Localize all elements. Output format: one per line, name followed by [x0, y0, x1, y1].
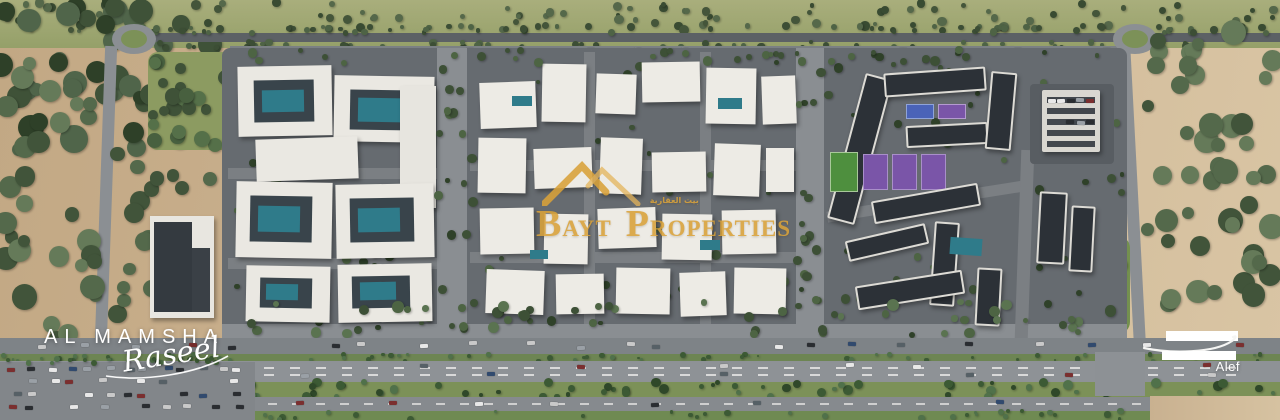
- tree: [503, 26, 509, 32]
- tree: [1117, 408, 1124, 415]
- tree: [782, 22, 790, 30]
- lane-marking: [576, 374, 586, 376]
- tree: [633, 17, 639, 23]
- car: [527, 341, 535, 345]
- tree: [23, 1, 30, 8]
- tree: [990, 28, 998, 36]
- lane-marking: [676, 403, 685, 405]
- cluster-west: [258, 206, 300, 233]
- tree: [1092, 10, 1100, 18]
- lane-marking: [758, 374, 768, 376]
- tree: [960, 316, 969, 325]
- lane-marking: [1018, 367, 1028, 369]
- cluster-central: [616, 268, 671, 315]
- tree: [965, 413, 969, 417]
- tree: [611, 387, 616, 392]
- lane-marking: [342, 367, 352, 369]
- car: [295, 401, 303, 405]
- lane-marking: [892, 403, 901, 405]
- tree: [1263, 30, 1269, 36]
- cluster-east: [892, 154, 917, 190]
- tree: [1192, 38, 1204, 50]
- parking-structure: [1047, 130, 1095, 136]
- tree: [179, 88, 194, 103]
- lane-marking: [888, 367, 898, 369]
- tree: [818, 325, 827, 334]
- tree: [555, 24, 560, 29]
- tree: [1225, 217, 1241, 233]
- tree: [182, 101, 196, 115]
- lane-marking: [420, 374, 430, 376]
- tree: [216, 25, 224, 33]
- tree: [848, 53, 855, 60]
- cluster-central: [642, 61, 701, 102]
- lane-marking: [654, 367, 664, 369]
- lane-marking: [844, 403, 853, 405]
- tree: [191, 0, 201, 10]
- desert-left: [121, 30, 147, 48]
- car: [180, 392, 188, 396]
- tree: [1155, 209, 1178, 232]
- tree: [1242, 283, 1266, 307]
- cluster-central: [706, 68, 757, 125]
- tree: [268, 415, 273, 420]
- lane-marking: [368, 367, 378, 369]
- tree: [834, 63, 844, 73]
- lane-marking: [472, 367, 482, 369]
- tree: [1023, 24, 1030, 31]
- tree: [6, 358, 10, 362]
- lane-marking: [484, 403, 493, 405]
- lane-marking: [498, 374, 508, 376]
- tree: [951, 315, 957, 321]
- tree: [436, 130, 443, 137]
- lane-marking: [1070, 367, 1080, 369]
- tree: [448, 354, 453, 359]
- lane-marking: [368, 374, 378, 376]
- tree: [338, 27, 342, 31]
- tree: [978, 381, 984, 387]
- tree: [1199, 113, 1223, 137]
- tree: [203, 172, 217, 186]
- cluster-west: [360, 282, 396, 301]
- tree: [798, 57, 806, 65]
- tree: [1255, 385, 1263, 393]
- tree: [129, 0, 153, 23]
- car: [65, 380, 73, 384]
- tree: [774, 60, 779, 65]
- tree: [1269, 6, 1277, 14]
- tree: [459, 322, 468, 331]
- tree: [167, 169, 180, 182]
- tree: [496, 390, 500, 394]
- watermark-word-2: PROPERTIES: [626, 207, 791, 241]
- tree: [15, 166, 36, 187]
- lane-marking: [1036, 403, 1045, 405]
- car: [7, 368, 15, 372]
- tree: [1063, 380, 1073, 390]
- car: [232, 368, 240, 372]
- tree: [201, 104, 212, 115]
- lane-marking: [602, 367, 612, 369]
- tree: [388, 353, 393, 358]
- car: [1065, 373, 1073, 377]
- car: [577, 365, 585, 369]
- tree: [566, 392, 570, 396]
- tree: [937, 17, 946, 26]
- watermark-word-1: BAYT: [536, 207, 612, 241]
- car: [487, 372, 495, 376]
- tree: [878, 26, 884, 32]
- tree: [477, 52, 486, 61]
- lane-marking: [940, 367, 950, 369]
- car: [332, 344, 340, 348]
- tree: [326, 410, 331, 415]
- tree: [108, 305, 126, 323]
- tree: [991, 14, 999, 22]
- cluster-central: [718, 98, 742, 109]
- tree: [1074, 390, 1078, 394]
- car: [357, 342, 365, 346]
- cluster-west: [266, 284, 298, 301]
- tree: [1141, 223, 1154, 236]
- lane-marking: [268, 403, 277, 405]
- watermark-arabic-text: بيت العقارية: [650, 197, 699, 205]
- lane-marking: [680, 367, 690, 369]
- car: [1086, 98, 1094, 102]
- tree: [249, 30, 255, 36]
- tree: [157, 40, 163, 46]
- lane-marking: [1018, 374, 1028, 376]
- car: [106, 393, 114, 397]
- desert-right: [1122, 30, 1148, 48]
- lane-marking: [394, 367, 404, 369]
- lane-marking: [412, 403, 421, 405]
- tree: [204, 19, 212, 27]
- tree: [186, 43, 192, 49]
- tree: [1121, 5, 1127, 11]
- tree: [1181, 166, 1199, 184]
- tree: [214, 45, 219, 50]
- lane-marking: [1084, 403, 1093, 405]
- lane-marking: [796, 403, 805, 405]
- tree: [1011, 385, 1016, 390]
- cluster-central: [700, 240, 720, 250]
- tree: [1073, 27, 1080, 34]
- tree: [724, 410, 731, 417]
- tree: [1207, 285, 1222, 300]
- tree: [831, 24, 837, 30]
- tree: [912, 28, 917, 33]
- tree: [1190, 29, 1197, 36]
- lane-marking: [758, 367, 768, 369]
- tree: [870, 26, 875, 31]
- car: [199, 394, 207, 398]
- tree: [488, 322, 499, 333]
- tree: [701, 299, 708, 306]
- tree: [817, 388, 826, 397]
- lane-marking: [264, 374, 274, 376]
- cluster-central: [512, 96, 532, 106]
- tree: [589, 319, 597, 327]
- lane-marking: [836, 367, 846, 369]
- car: [897, 343, 905, 347]
- tree: [445, 85, 454, 94]
- tree: [56, 2, 80, 26]
- car: [652, 345, 660, 349]
- tree: [49, 53, 68, 72]
- tree: [1210, 26, 1218, 34]
- tree: [944, 380, 953, 389]
- tree: [162, 44, 169, 51]
- tree: [968, 102, 974, 108]
- tree: [975, 26, 981, 32]
- tree: [670, 410, 673, 413]
- tree: [354, 326, 362, 334]
- tree: [732, 383, 738, 389]
- tree: [65, 207, 79, 221]
- lane-marking: [732, 374, 742, 376]
- lane-marking: [992, 367, 1002, 369]
- tree: [1166, 16, 1170, 20]
- car: [1057, 99, 1065, 103]
- lane-marking: [524, 374, 534, 376]
- lane-marking: [680, 374, 690, 376]
- cluster-west: [192, 248, 210, 312]
- tree: [461, 180, 467, 186]
- tree: [1042, 50, 1047, 55]
- tree: [148, 119, 159, 130]
- tree: [343, 30, 348, 35]
- car: [1085, 120, 1093, 124]
- tree: [445, 178, 450, 183]
- cluster-west: [255, 136, 358, 182]
- tree: [498, 301, 509, 312]
- agency-watermark-text: BAYT بيت العقارية PROPERTIES: [536, 207, 796, 241]
- car: [1066, 120, 1074, 124]
- tree: [750, 330, 758, 338]
- lane-marking: [524, 367, 534, 369]
- lane-marking: [290, 367, 300, 369]
- lane-marking: [888, 374, 898, 376]
- cluster-central: [541, 64, 586, 123]
- tree: [957, 299, 963, 305]
- lane-marking: [820, 403, 829, 405]
- cluster-central: [480, 208, 535, 255]
- car: [233, 392, 241, 396]
- lane-marking: [446, 374, 456, 376]
- cluster-central: [595, 73, 636, 114]
- tree: [778, 307, 787, 316]
- car: [720, 371, 728, 375]
- tree: [1186, 280, 1209, 303]
- car: [27, 367, 35, 371]
- tree: [1213, 159, 1238, 184]
- lane-marking: [628, 374, 638, 376]
- agency-watermark: BAYT بيت العقارية PROPERTIES: [536, 160, 796, 241]
- lane-marking: [992, 374, 1002, 376]
- tree: [1001, 300, 1012, 311]
- tree: [788, 411, 792, 415]
- lane-marking: [316, 403, 325, 405]
- tree: [599, 353, 605, 359]
- car: [183, 404, 191, 408]
- tree: [1068, 316, 1075, 323]
- tree: [359, 305, 369, 315]
- car: [577, 346, 585, 350]
- tree: [706, 355, 711, 360]
- developer-logo: Alef: [1136, 326, 1248, 380]
- tree: [68, 358, 72, 362]
- lane-marking: [580, 403, 589, 405]
- tree: [882, 310, 890, 318]
- tree: [375, 325, 381, 331]
- car: [627, 342, 635, 346]
- tree: [1036, 25, 1042, 31]
- tree: [791, 16, 799, 24]
- tree: [1105, 305, 1116, 316]
- lane-marking: [604, 403, 613, 405]
- car: [807, 343, 815, 347]
- tree: [486, 352, 490, 356]
- tree: [887, 299, 899, 311]
- tree: [17, 9, 40, 32]
- tree: [536, 80, 541, 85]
- car: [1067, 99, 1075, 103]
- tree: [392, 301, 403, 312]
- tree: [219, 0, 226, 7]
- car: [966, 373, 974, 377]
- tree: [703, 56, 713, 66]
- lane-marking: [772, 403, 781, 405]
- tree: [447, 230, 457, 240]
- lane-marking: [316, 374, 326, 376]
- tree: [875, 353, 878, 356]
- tree: [367, 24, 372, 29]
- tree: [807, 10, 812, 15]
- lane-marking: [1060, 403, 1069, 405]
- car: [913, 365, 921, 369]
- masterplan-render: AL MAMSHA Raseel BAYT بيت العقارية PROPE…: [0, 0, 1280, 420]
- lane-marking: [550, 374, 560, 376]
- cluster-east: [949, 237, 982, 256]
- tree: [1088, 39, 1094, 45]
- car: [469, 341, 477, 345]
- cluster-east: [906, 104, 934, 119]
- lane-marking: [508, 403, 517, 405]
- lane-marking: [602, 374, 612, 376]
- tree: [990, 381, 994, 385]
- tree: [907, 6, 914, 13]
- tree: [1147, 57, 1165, 75]
- lane-marking: [340, 403, 349, 405]
- tree: [63, 79, 82, 98]
- lane-marking: [810, 374, 820, 376]
- tree: [535, 23, 541, 29]
- car: [996, 399, 1004, 403]
- car: [846, 363, 854, 367]
- tree: [272, 0, 281, 7]
- tree: [117, 294, 130, 307]
- tree: [961, 3, 966, 8]
- tree: [504, 316, 512, 324]
- tree: [255, 57, 263, 65]
- lane-marking: [940, 374, 950, 376]
- tree: [0, 2, 15, 20]
- car: [124, 393, 132, 397]
- tree: [1171, 76, 1189, 94]
- tree: [757, 355, 759, 357]
- car: [49, 368, 57, 372]
- lane-marking: [364, 403, 373, 405]
- tree: [352, 29, 358, 35]
- car: [142, 404, 150, 408]
- tree: [571, 307, 578, 314]
- tree: [458, 23, 464, 29]
- lane-marking: [446, 367, 456, 369]
- lane-marking: [724, 403, 733, 405]
- lane-marking: [700, 403, 709, 405]
- lane-marking: [290, 374, 300, 376]
- car: [212, 405, 220, 409]
- lane-marking: [654, 374, 664, 376]
- tree: [248, 48, 258, 58]
- tree: [423, 27, 429, 33]
- tree: [875, 53, 883, 61]
- lane-marking: [784, 374, 794, 376]
- tree: [918, 415, 925, 420]
- lane-marking: [1108, 403, 1117, 405]
- tree: [854, 380, 863, 389]
- cluster-east: [905, 122, 988, 148]
- tree: [91, 360, 97, 366]
- tree: [123, 263, 135, 275]
- tree: [547, 316, 557, 326]
- tree: [745, 23, 750, 28]
- tree: [149, 57, 161, 69]
- tree: [462, 390, 469, 397]
- tree: [661, 2, 666, 7]
- car: [420, 343, 428, 347]
- car: [163, 405, 171, 409]
- tree: [1104, 411, 1110, 417]
- tree: [23, 57, 36, 70]
- tree: [986, 9, 991, 14]
- cluster-west: [154, 222, 192, 312]
- tree: [49, 246, 70, 267]
- tree: [35, 0, 44, 8]
- tree: [434, 191, 443, 200]
- tree: [208, 138, 222, 152]
- tree: [800, 235, 807, 242]
- lane-marking: [916, 403, 925, 405]
- tree: [659, 384, 669, 394]
- tree: [796, 101, 802, 107]
- car: [70, 405, 78, 409]
- tree: [680, 352, 686, 358]
- car: [85, 393, 93, 397]
- lane-marking: [1132, 403, 1141, 405]
- tree: [581, 414, 585, 418]
- cluster-central: [761, 75, 797, 124]
- lane-marking: [868, 403, 877, 405]
- tree: [247, 319, 256, 328]
- tree: [1104, 21, 1113, 30]
- car: [236, 405, 244, 409]
- tree: [370, 355, 374, 359]
- tree: [12, 284, 38, 310]
- lane-marking: [914, 374, 924, 376]
